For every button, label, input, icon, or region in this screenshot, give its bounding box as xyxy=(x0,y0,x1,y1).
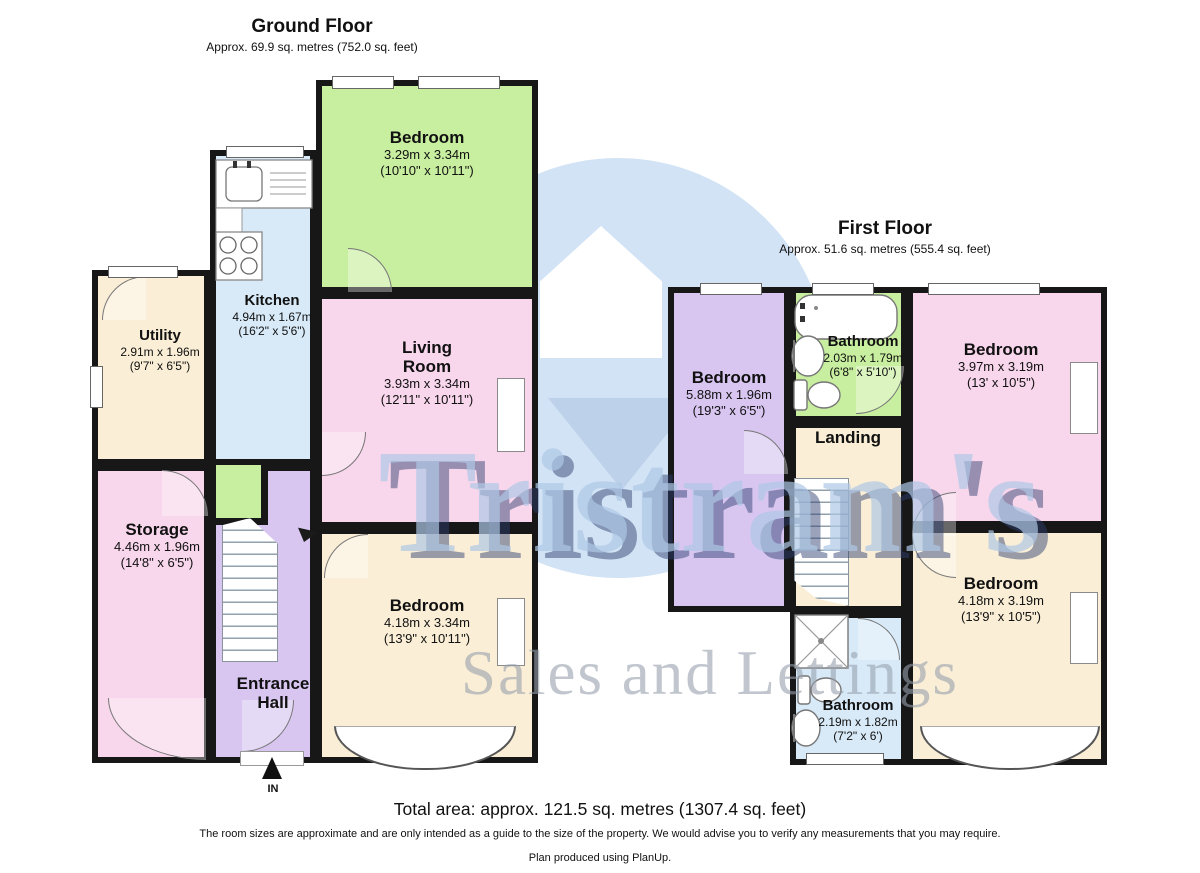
first-floor-area-text: Approx. 51.6 sq. metres (555.4 sq. feet) xyxy=(705,242,1065,256)
stairs-first-floor xyxy=(794,478,849,606)
storage-label: Storage 4.46m x 1.96m (14'8" x 6'5") xyxy=(92,520,222,571)
entrance-arrow-icon xyxy=(262,757,282,779)
ground-floor-title: Ground Floor Approx. 69.9 sq. metres (75… xyxy=(132,16,492,54)
room-dims-imperial: (7'2" x 6') xyxy=(796,729,920,744)
room-name: Bathroom xyxy=(803,334,923,351)
first-floor-title: First Floor Approx. 51.6 sq. metres (555… xyxy=(705,218,1065,256)
window xyxy=(812,283,874,295)
room-name: Bedroom xyxy=(911,574,1091,593)
room-name: Utility xyxy=(95,328,225,345)
ff-bedroom-left-label: Bedroom 5.88m x 1.96m (19'3" x 6'5") xyxy=(659,368,799,419)
window xyxy=(332,76,394,89)
window xyxy=(108,266,178,278)
room-name: Kitchen xyxy=(212,293,332,310)
room-dims-metric: 4.46m x 1.96m xyxy=(92,539,222,555)
room-name: Bedroom xyxy=(659,368,799,387)
room-name: Landing xyxy=(788,428,908,447)
ff-bathroom-bottom-label: Bathroom 2.19m x 1.82m (7'2" x 6') xyxy=(796,698,920,744)
bay-window xyxy=(334,726,516,770)
ff-bedroom-top-right-label: Bedroom 3.97m x 3.19m (13' x 10'5") xyxy=(911,340,1091,391)
living-room-label: Living Room 3.93m x 3.34m (12'11" x 10'1… xyxy=(377,338,477,408)
first-floor-title-text: First Floor xyxy=(705,218,1065,240)
room-dims-imperial: (6'8" x 5'10") xyxy=(803,365,923,380)
ground-floor-title-text: Ground Floor xyxy=(132,16,492,38)
disclaimer-text: The room sizes are approximate and are o… xyxy=(185,827,1015,842)
room-name: Bedroom xyxy=(337,596,517,615)
room-dims-imperial: (13'9" x 10'11") xyxy=(337,631,517,647)
window xyxy=(928,283,1040,295)
room-name: Entrance Hall xyxy=(223,674,323,712)
room-dims-metric: 3.93m x 3.34m xyxy=(347,376,507,392)
room-dims-metric: 2.19m x 1.82m xyxy=(796,715,920,730)
ff-bedroom-bottom-right-label: Bedroom 4.18m x 3.19m (13'9" x 10'5") xyxy=(911,574,1091,625)
room-dims-metric: 4.18m x 3.34m xyxy=(337,615,517,631)
ff-landing-label: Landing xyxy=(788,428,908,447)
room-dims-metric: 5.88m x 1.96m xyxy=(659,387,799,403)
ff-bathroom-top-label: Bathroom 2.03m x 1.79m (6'8" x 5'10") xyxy=(803,334,923,380)
total-area-text: Total area: approx. 121.5 sq. metres (13… xyxy=(0,799,1200,820)
room-name: Bathroom xyxy=(796,698,920,715)
room-dims-imperial: (19'3" x 6'5") xyxy=(659,403,799,419)
room-dims-imperial: (16'2" x 5'6") xyxy=(212,324,332,339)
room-dims-imperial: (12'11" x 10'11") xyxy=(347,392,507,408)
room-dims-imperial: (13'9" x 10'5") xyxy=(911,609,1091,625)
room-name: Storage xyxy=(92,520,222,539)
entrance-hall-label: Entrance Hall xyxy=(223,674,323,712)
room-dims-metric: 3.97m x 3.19m xyxy=(911,359,1091,375)
kitchen-label: Kitchen 4.94m x 1.67m (16'2" x 5'6") xyxy=(212,293,332,339)
stairs-ground xyxy=(222,518,278,662)
room-name: Living Room xyxy=(377,338,477,376)
bedroom-top-label: Bedroom 3.29m x 3.34m (10'10" x 10'11") xyxy=(337,128,517,179)
room-name: Bedroom xyxy=(337,128,517,147)
room-dims-metric: 4.18m x 3.19m xyxy=(911,593,1091,609)
window xyxy=(418,76,500,89)
room-dims-imperial: (13' x 10'5") xyxy=(911,375,1091,391)
entrance-in-label: IN xyxy=(268,783,279,795)
utility-label: Utility 2.91m x 1.96m (9'7" x 6'5") xyxy=(95,328,225,374)
room-dims-metric: 2.91m x 1.96m xyxy=(95,345,225,360)
room-dims-metric: 4.94m x 1.67m xyxy=(212,310,332,325)
room-dims-metric: 3.29m x 3.34m xyxy=(337,147,517,163)
credit-text: Plan produced using PlanUp. xyxy=(0,852,1200,864)
floorplan-page: Ground Floor Approx. 69.9 sq. metres (75… xyxy=(0,0,1200,873)
window xyxy=(700,283,762,295)
room-dims-metric: 2.03m x 1.79m xyxy=(803,351,923,366)
room-name: Bedroom xyxy=(911,340,1091,359)
window xyxy=(806,753,884,765)
bedroom-bottom-label: Bedroom 4.18m x 3.34m (13'9" x 10'11") xyxy=(337,596,517,647)
ground-floor-area-text: Approx. 69.9 sq. metres (752.0 sq. feet) xyxy=(132,40,492,54)
window xyxy=(226,146,304,158)
room-dims-imperial: (14'8" x 6'5") xyxy=(92,555,222,571)
room-dims-imperial: (10'10" x 10'11") xyxy=(337,163,517,179)
understairs-closet xyxy=(216,465,268,525)
room-dims-imperial: (9'7" x 6'5") xyxy=(95,359,225,374)
